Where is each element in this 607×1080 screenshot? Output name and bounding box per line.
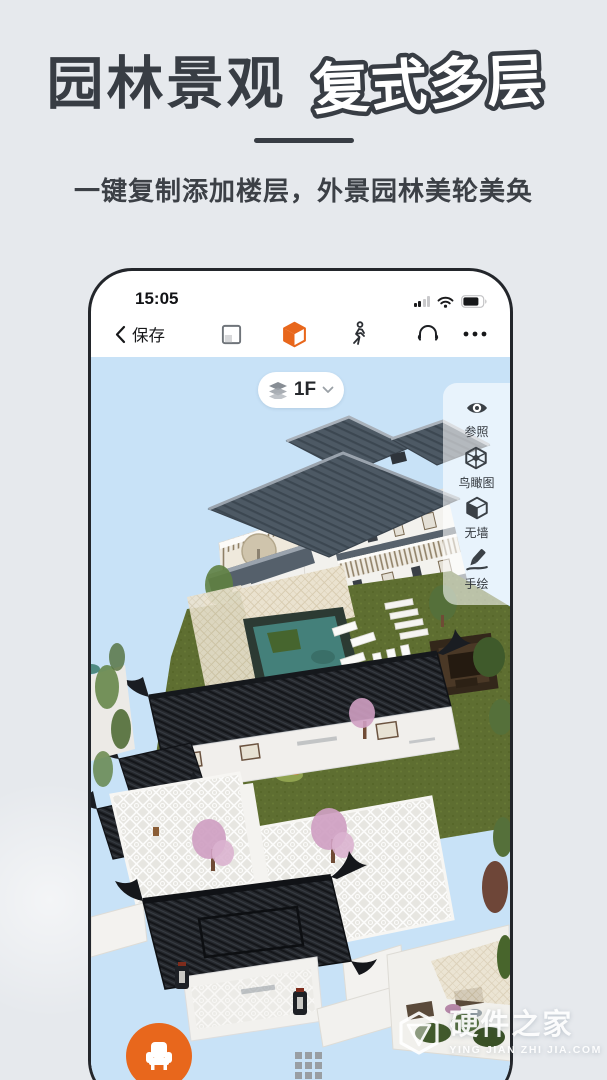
watermark-logo-icon <box>396 1010 442 1056</box>
side-tool-rail: 参照 鸟瞰图 无墙 <box>443 383 510 605</box>
support-button[interactable] <box>416 322 440 346</box>
layers-icon <box>268 381 288 399</box>
more-ellipsis-icon <box>462 330 488 338</box>
birdview-cube-icon <box>463 445 489 471</box>
sofa-icon <box>142 1040 176 1072</box>
gate-lantern <box>293 988 307 1015</box>
toolbar-right-group <box>416 322 488 346</box>
chevron-down-icon <box>322 386 334 394</box>
eye-icon <box>464 396 490 420</box>
design-canvas[interactable]: 1F 参照 <box>91 357 510 1080</box>
hero-title-solid: 园林景观 <box>47 56 287 113</box>
tool-birdview[interactable]: 鸟瞰图 <box>458 445 494 491</box>
status-time: 15:05 <box>135 289 178 309</box>
gate-lantern <box>175 962 189 989</box>
furniture-fab-button[interactable] <box>126 1023 192 1080</box>
hero-title-outline-text: 复式多层 <box>311 48 546 121</box>
watermark-text: 硬件之家 YING JIAN ZHI JIA.COM <box>449 1010 602 1056</box>
hero-section: 园林景观 复式多层 一键复制添加楼层，外景园林美轮美奂 <box>0 44 607 208</box>
walk-person-icon <box>346 321 370 347</box>
watermark-subtitle: YING JIAN ZHI JIA.COM <box>449 1044 602 1056</box>
wifi-icon <box>437 296 454 308</box>
3d-view-button[interactable] <box>280 320 309 349</box>
toolbar-mid-group <box>220 320 370 349</box>
2d-plan-view-button[interactable] <box>220 323 243 346</box>
status-icons <box>414 295 489 309</box>
status-bar: 15:05 <box>91 271 510 311</box>
floor-selector[interactable]: 1F <box>258 372 344 408</box>
site-watermark: 硬件之家 YING JIAN ZHI JIA.COM <box>396 1010 602 1056</box>
cellular-signal-icon <box>414 296 431 307</box>
tool-no-wall[interactable]: 无墙 <box>464 495 490 541</box>
back-chevron-icon <box>115 325 126 344</box>
pencil-icon <box>464 546 490 572</box>
save-label: 保存 <box>132 322 165 346</box>
walkthrough-button[interactable] <box>346 321 370 347</box>
more-button[interactable] <box>462 330 488 338</box>
app-toolbar: 保存 <box>91 311 510 357</box>
no-wall-cube-icon <box>464 495 490 521</box>
watermark-title: 硬件之家 <box>449 1010 573 1042</box>
hero-subtitle: 一键复制添加楼层，外景园林美轮美奂 <box>0 171 607 208</box>
tool-label: 无墙 <box>464 524 488 541</box>
hero-title-outline: 复式多层 <box>297 44 561 124</box>
tool-hand-draw[interactable]: 手绘 <box>464 546 490 592</box>
grid-apps-icon[interactable] <box>295 1052 322 1079</box>
tool-label: 手绘 <box>464 575 488 592</box>
back-save-button[interactable]: 保存 <box>115 322 165 346</box>
page: 园林景观 复式多层 一键复制添加楼层，外景园林美轮美奂 15:05 <box>0 0 607 1080</box>
tool-label: 参照 <box>464 423 488 440</box>
hero-title-row: 园林景观 复式多层 <box>0 44 607 124</box>
tool-reference[interactable]: 参照 <box>464 396 490 440</box>
battery-icon <box>461 295 488 308</box>
2d-plan-icon <box>220 323 243 346</box>
floor-label: 1F <box>294 379 316 401</box>
hero-underline <box>254 138 354 143</box>
tool-label: 鸟瞰图 <box>458 474 494 491</box>
phone-mockup: 15:05 <box>88 268 513 1080</box>
headset-icon <box>416 322 440 346</box>
3d-cube-icon <box>280 320 309 349</box>
